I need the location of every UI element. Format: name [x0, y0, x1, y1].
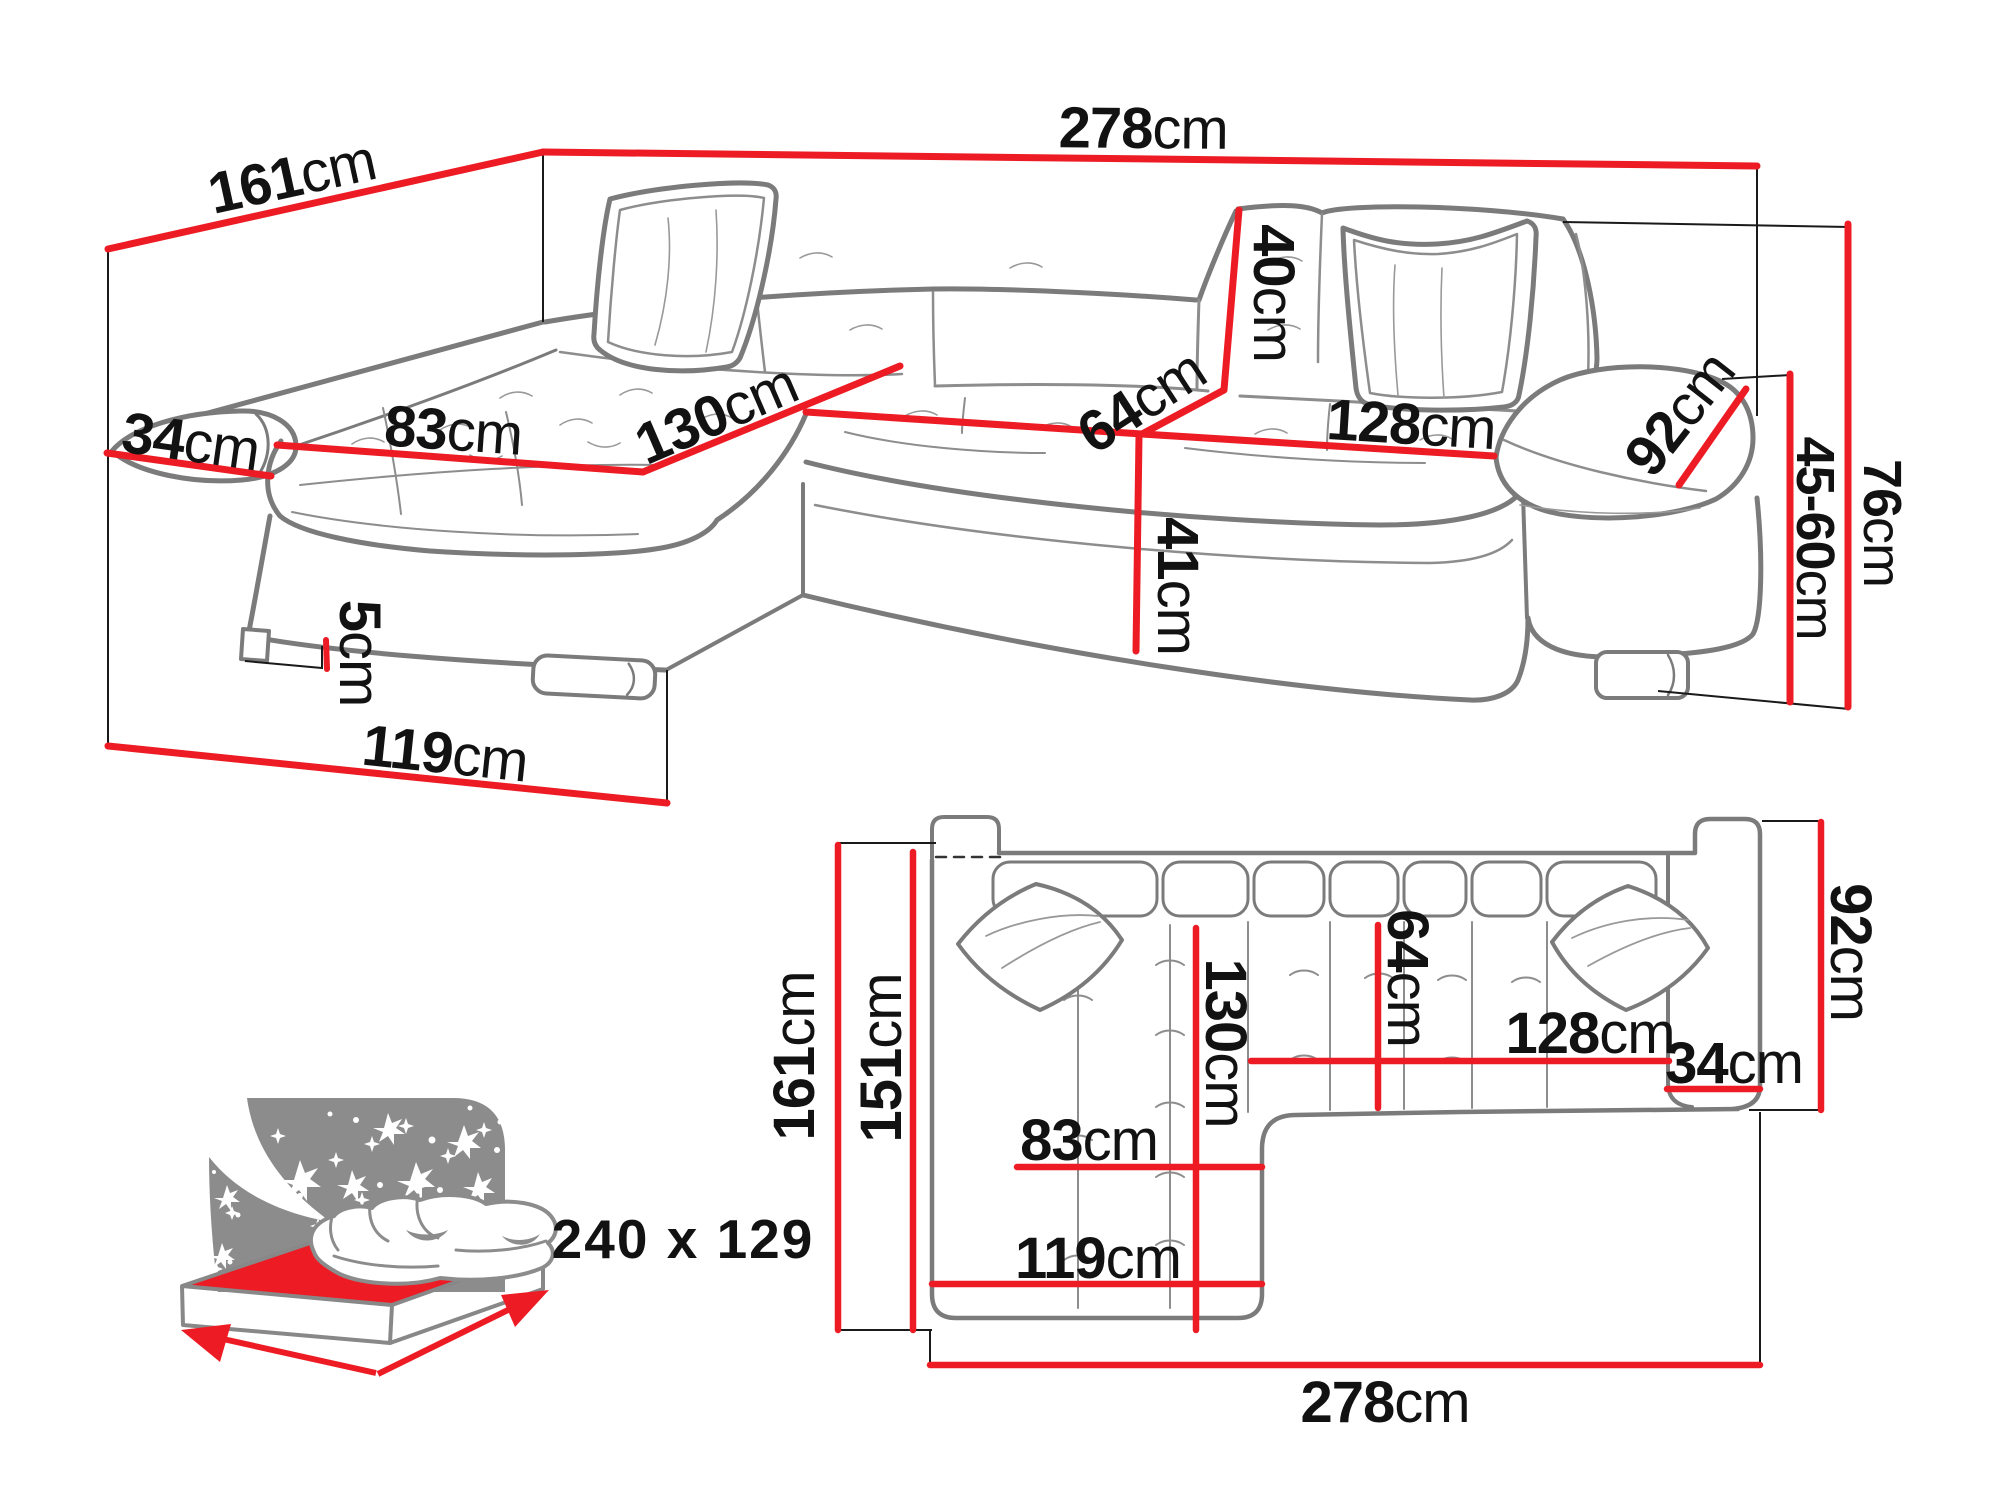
svg-text:83cm: 83cm — [382, 393, 524, 467]
svg-text:278cm: 278cm — [1058, 95, 1228, 161]
svg-text:151cm: 151cm — [849, 973, 914, 1142]
svg-text:278cm: 278cm — [1300, 1370, 1469, 1435]
svg-text:5cm: 5cm — [327, 600, 392, 707]
svg-text:240 x 129: 240 x 129 — [552, 1208, 815, 1270]
svg-text:128cm: 128cm — [1505, 1001, 1674, 1066]
svg-text:40cm: 40cm — [1241, 224, 1306, 362]
svg-text:161cm: 161cm — [762, 971, 827, 1140]
svg-text:92cm: 92cm — [1818, 883, 1883, 1021]
svg-text:128cm: 128cm — [1325, 387, 1498, 462]
svg-text:34cm: 34cm — [1665, 1031, 1803, 1096]
svg-text:83cm: 83cm — [1020, 1108, 1158, 1173]
svg-text:45-60cm: 45-60cm — [1785, 436, 1845, 639]
svg-text:41cm: 41cm — [1145, 517, 1210, 655]
svg-text:76cm: 76cm — [1852, 459, 1912, 587]
svg-text:119cm: 119cm — [1015, 1226, 1181, 1291]
svg-text:64cm: 64cm — [1375, 909, 1440, 1047]
svg-text:130cm: 130cm — [1193, 958, 1258, 1127]
